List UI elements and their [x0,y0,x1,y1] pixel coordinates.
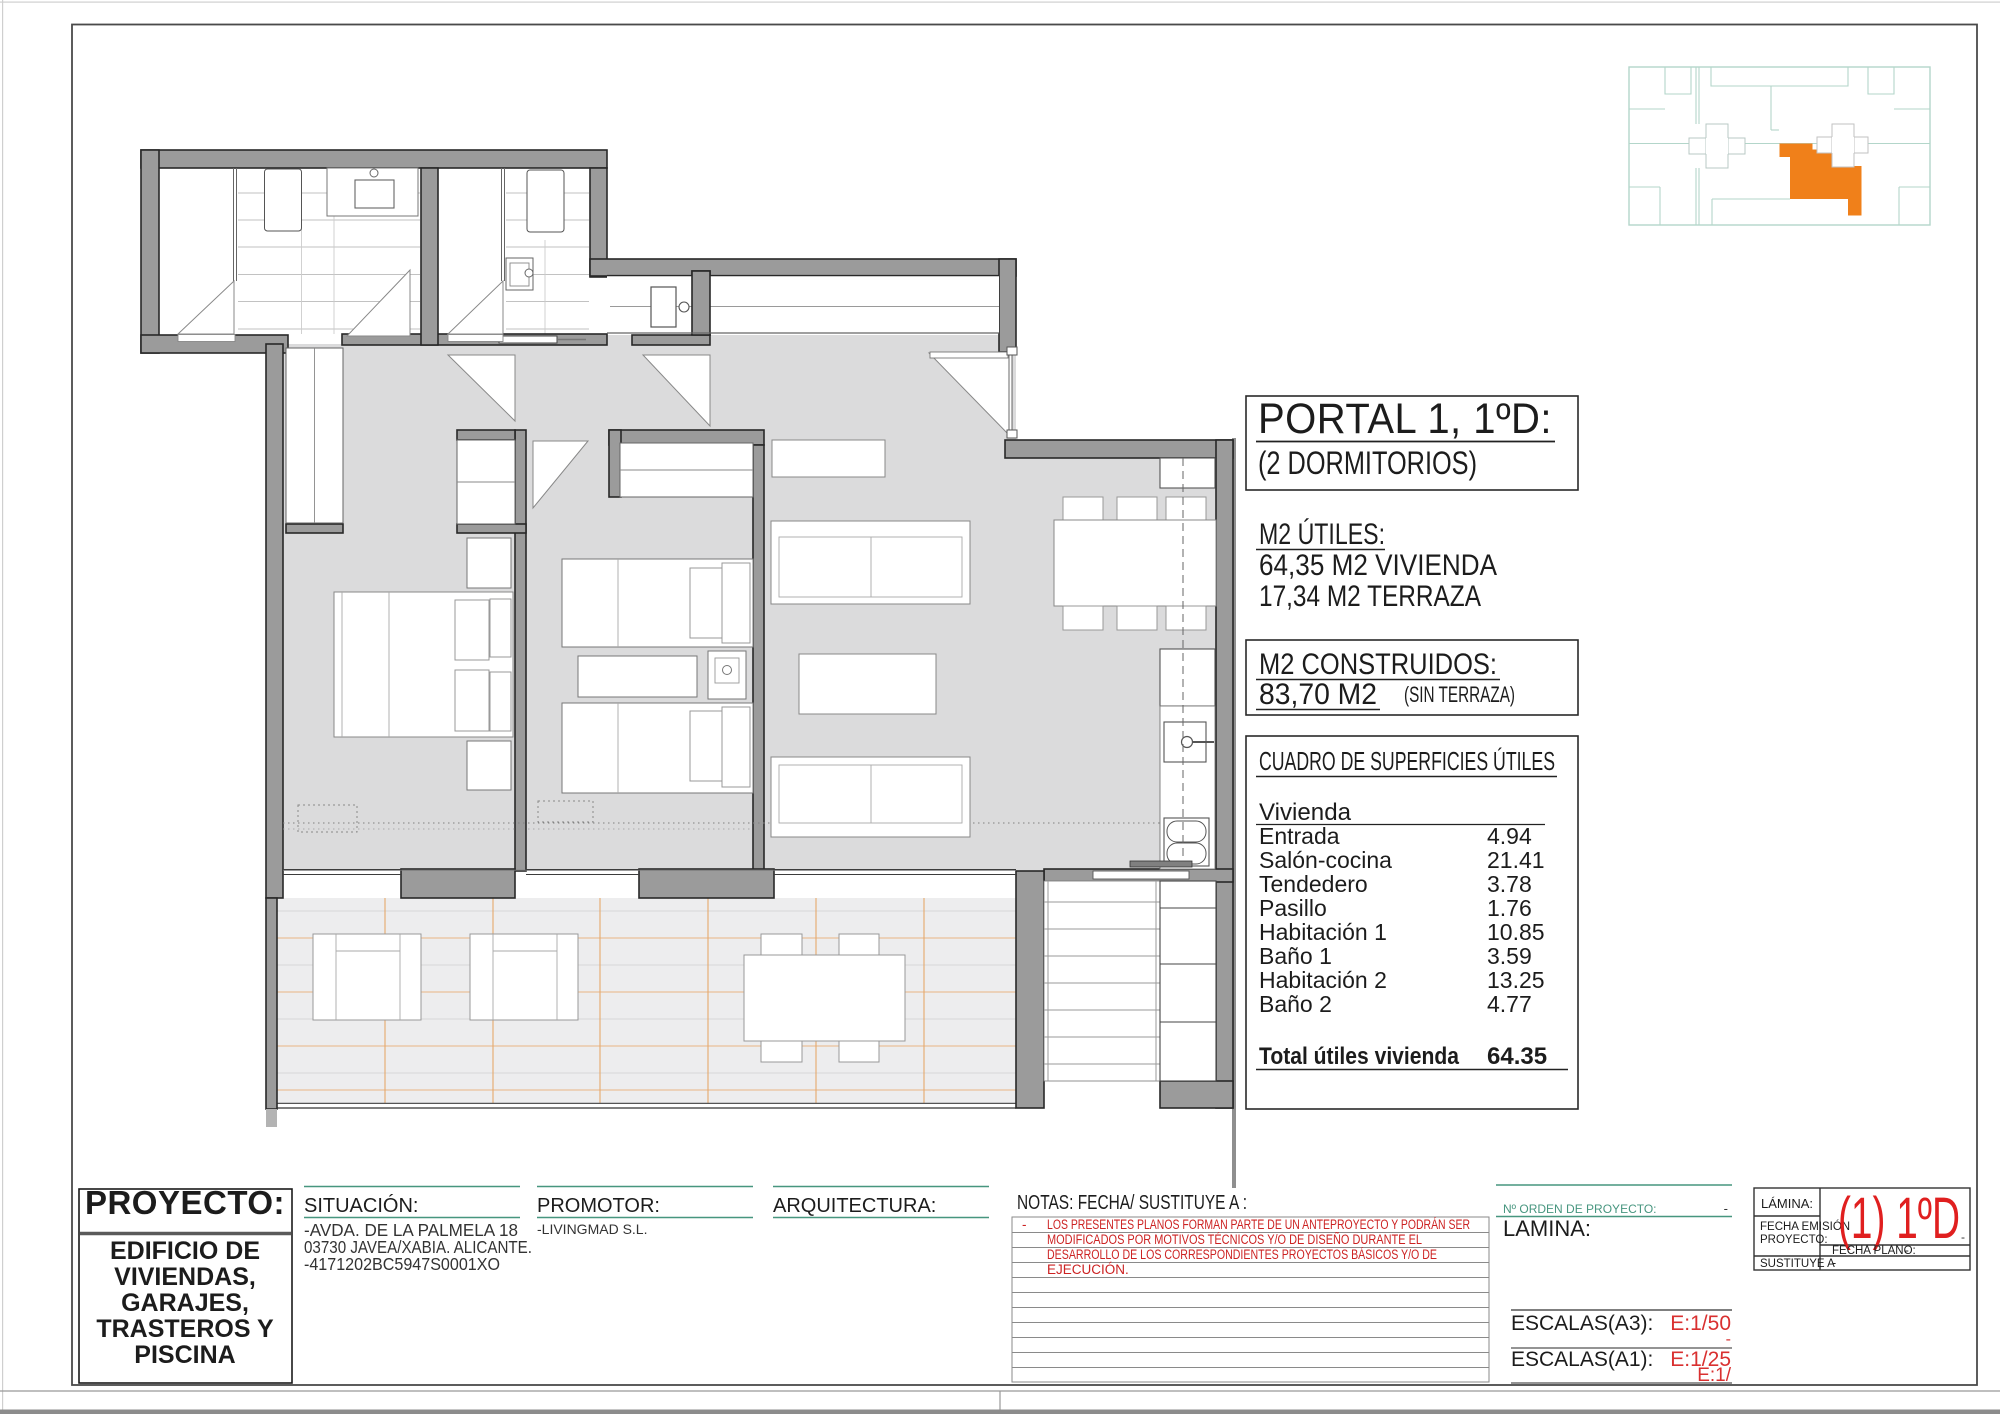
svg-text:1.76: 1.76 [1487,895,1532,921]
svg-text:Baño 1: Baño 1 [1259,943,1332,969]
svg-text:-4171202BC5947S0001XO: -4171202BC5947S0001XO [304,1254,500,1274]
svg-text:-: - [1905,1245,1909,1257]
svg-text:4.94: 4.94 [1487,823,1532,849]
svg-text:10.85: 10.85 [1487,919,1545,945]
svg-text:3.78: 3.78 [1487,871,1532,897]
svg-text:LÁMINA:: LÁMINA: [1761,1196,1813,1211]
svg-text:DESARROLLO DE LOS CORRESPONDIE: DESARROLLO DE LOS CORRESPONDIENTES PROYE… [1047,1247,1437,1262]
svg-text:M2 CONSTRUIDOS:: M2 CONSTRUIDOS: [1259,648,1497,681]
svg-text:NOTAS: FECHA/ SUSTITUYE A :: NOTAS: FECHA/ SUSTITUYE A : [1017,1192,1247,1214]
svg-text:21.41: 21.41 [1487,847,1545,873]
svg-text:VIVIENDAS,: VIVIENDAS, [114,1263,256,1291]
svg-text:Baño 2: Baño 2 [1259,991,1332,1017]
svg-text:FECHA PLANO:: FECHA PLANO: [1832,1245,1916,1257]
svg-text:LOS PRESENTES PLANOS FORMAN PA: LOS PRESENTES PLANOS FORMAN PARTE DE UN … [1047,1217,1470,1232]
svg-text:PROYECTO:: PROYECTO: [1760,1234,1828,1246]
svg-text:EDIFICIO DE: EDIFICIO DE [110,1237,260,1265]
svg-text:64.35: 64.35 [1487,1043,1547,1070]
svg-text:-: - [1022,1217,1027,1232]
svg-text:PROMOTOR:: PROMOTOR: [537,1195,660,1217]
svg-text:4.77: 4.77 [1487,991,1532,1017]
svg-text:E:1/50: E:1/50 [1670,1312,1731,1335]
svg-text:(2 DORMITORIOS): (2 DORMITORIOS) [1258,445,1477,481]
svg-text:13.25: 13.25 [1487,967,1545,993]
svg-text:83,70 M2: 83,70 M2 [1259,678,1377,711]
svg-text:-: - [1726,1331,1731,1348]
svg-text:Salón-cocina: Salón-cocina [1259,847,1392,873]
svg-text:(1) 1ºD: (1) 1ºD [1838,1186,1960,1251]
svg-text:LAMINA:: LAMINA: [1503,1216,1591,1241]
svg-text:FECHA EMISIÓN: FECHA EMISIÓN [1760,1220,1850,1233]
svg-text:Vivienda: Vivienda [1259,799,1352,826]
svg-text:CUADRO DE SUPERFICIES ÚTILES: CUADRO DE SUPERFICIES ÚTILES [1259,746,1555,776]
svg-text:Tendedero: Tendedero [1259,871,1368,897]
svg-text:PISCINA: PISCINA [134,1341,235,1369]
svg-text:PORTAL 1, 1ºD:: PORTAL 1, 1ºD: [1258,395,1552,443]
svg-text:ESCALAS(A3):: ESCALAS(A3): [1511,1312,1653,1335]
svg-text:TRASTEROS Y: TRASTEROS Y [96,1315,274,1343]
svg-text:-: - [1724,1201,1728,1216]
svg-text:Habitación 1: Habitación 1 [1259,919,1387,945]
svg-text:ARQUITECTURA:: ARQUITECTURA: [773,1195,936,1217]
svg-text:M2 ÚTILES:: M2 ÚTILES: [1259,518,1385,551]
svg-text:PROYECTO:: PROYECTO: [85,1184,285,1221]
svg-text:64,35 M2 VIVIENDA: 64,35 M2 VIVIENDA [1259,549,1497,582]
svg-text:(SIN TERRAZA): (SIN TERRAZA) [1404,682,1515,707]
svg-text:-: - [1961,1230,1965,1244]
svg-text:GARAJES,: GARAJES, [121,1289,249,1317]
svg-text:SUSTITUYE A: SUSTITUYE A [1760,1258,1835,1270]
svg-text:3.59: 3.59 [1487,943,1532,969]
svg-text:SITUACIÓN:: SITUACIÓN: [304,1194,418,1217]
svg-text:-LIVINGMAD S.L.: -LIVINGMAD S.L. [537,1221,647,1237]
svg-text:Nº ORDEN DE PROYECTO:: Nº ORDEN DE PROYECTO: [1503,1202,1657,1216]
svg-text:MODIFICADOS POR MOTIVOS TÉCNI: MODIFICADOS POR MOTIVOS TÉCNICOS Y/O DE … [1047,1232,1422,1247]
svg-text:-: - [1832,1256,1836,1270]
svg-text:Pasillo: Pasillo [1259,895,1327,921]
svg-text:ESCALAS(A1):: ESCALAS(A1): [1511,1348,1653,1371]
svg-text:Total útiles vivienda: Total útiles vivienda [1259,1043,1460,1070]
svg-text:EJECUCIÓN.: EJECUCIÓN. [1047,1262,1129,1277]
svg-text:Habitación 2: Habitación 2 [1259,967,1387,993]
svg-text:17,34 M2 TERRAZA: 17,34 M2 TERRAZA [1259,580,1481,613]
svg-text:Entrada: Entrada [1259,823,1340,849]
